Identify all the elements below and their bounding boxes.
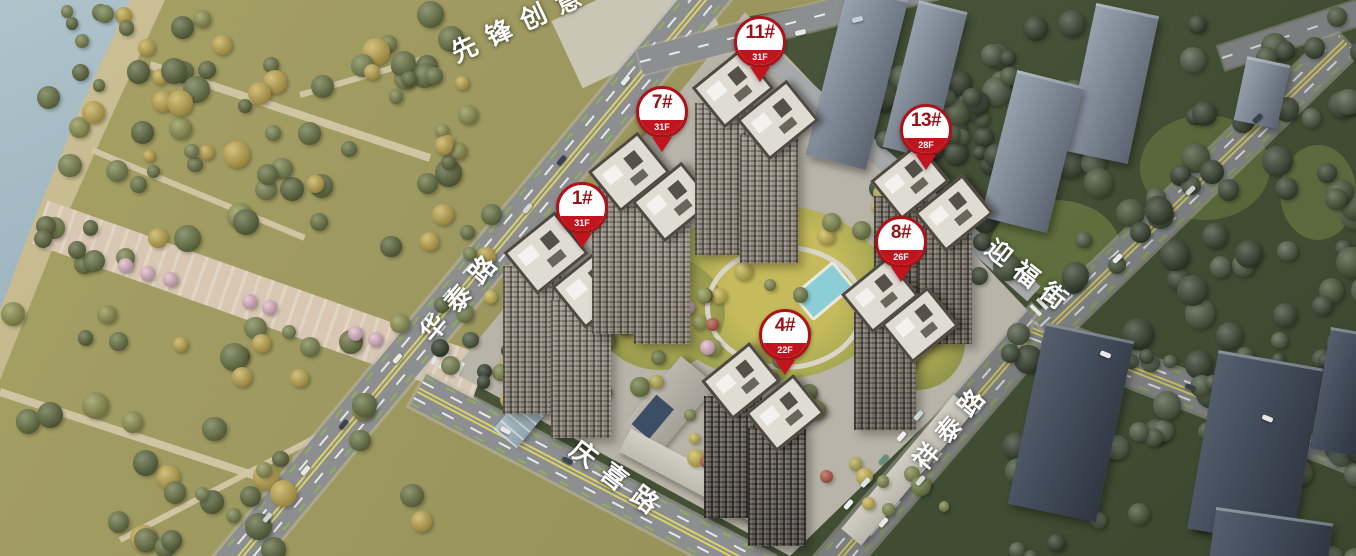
tree <box>417 173 438 194</box>
tree <box>233 209 259 235</box>
tree <box>68 241 87 260</box>
pin-floor-count: 31F <box>639 120 685 135</box>
tree <box>425 67 443 85</box>
tree <box>173 337 188 352</box>
tree <box>127 60 151 84</box>
tree <box>630 377 650 397</box>
pin-number-label: 7# <box>639 92 685 114</box>
building-pin-8[interactable]: 8#26F <box>875 216 927 282</box>
tree <box>458 105 478 125</box>
tree <box>1277 241 1298 262</box>
red-maple-tree <box>706 318 719 331</box>
pin-number-label: 13# <box>903 110 949 132</box>
tree <box>167 90 193 116</box>
pin-floor-count: 28F <box>903 138 949 153</box>
tree <box>1128 503 1150 525</box>
tree <box>310 213 328 231</box>
tree <box>143 150 155 162</box>
tree <box>307 175 324 192</box>
pin-tail <box>775 360 795 375</box>
tree <box>37 86 60 109</box>
tree <box>692 315 707 330</box>
tree <box>300 337 320 357</box>
tree <box>380 236 402 258</box>
tree <box>184 144 199 159</box>
tree <box>764 279 776 291</box>
pin-number-label: 8# <box>878 222 924 244</box>
tree <box>877 475 889 487</box>
tree <box>441 155 456 170</box>
pin-head: 4#22F <box>759 309 811 361</box>
tree <box>441 356 460 375</box>
tree <box>83 250 105 272</box>
tree <box>1163 355 1176 368</box>
tree <box>122 411 144 433</box>
tree <box>401 71 417 87</box>
tree <box>349 430 370 451</box>
tree <box>939 501 949 511</box>
tree <box>199 145 214 160</box>
pin-head: 13#28F <box>900 104 952 156</box>
pin-number-label: 11# <box>737 22 783 44</box>
blossom-tree <box>163 272 178 287</box>
pin-floor-count: 22F <box>762 343 808 358</box>
blossom-tree <box>368 332 383 347</box>
tree <box>1145 197 1173 225</box>
building-pin-11[interactable]: 11#31F <box>734 16 786 82</box>
tree <box>193 10 211 28</box>
tree <box>164 481 186 503</box>
tree <box>138 39 154 55</box>
tree <box>1325 188 1347 210</box>
tree <box>432 204 454 226</box>
tree <box>265 125 281 141</box>
tree <box>261 537 286 556</box>
tree <box>130 176 147 193</box>
tree <box>272 451 288 467</box>
tree <box>58 154 82 178</box>
tree <box>1 302 25 326</box>
tree <box>109 332 128 351</box>
tree <box>311 75 334 98</box>
tree <box>256 462 272 478</box>
tree <box>460 225 475 240</box>
tree <box>161 58 187 84</box>
building-pin-7[interactable]: 7#31F <box>636 86 688 152</box>
pin-tail <box>572 233 592 248</box>
tree <box>962 88 981 107</box>
tree <box>1130 222 1151 243</box>
tree <box>78 330 93 345</box>
tree <box>1262 146 1292 176</box>
building-pin-4[interactable]: 4#22F <box>759 309 811 375</box>
tree <box>106 160 129 183</box>
pin-tail <box>916 155 936 170</box>
tree <box>1058 10 1086 38</box>
tree <box>174 225 201 252</box>
tree <box>364 64 380 80</box>
tree <box>1302 108 1321 127</box>
tree <box>341 141 357 157</box>
tree <box>1218 179 1239 200</box>
tree <box>477 375 491 389</box>
tree <box>1001 344 1020 363</box>
tree <box>1172 165 1190 183</box>
blossom-tree <box>348 326 363 341</box>
tree <box>1075 232 1091 248</box>
pin-head: 1#31F <box>556 182 608 234</box>
tree <box>389 89 404 104</box>
aerial-masterplan: 先锋创意华泰路迎福街祥泰路庆喜路 1#31F4#22F7#31F8#26F11#… <box>0 0 1356 556</box>
tree <box>187 157 203 173</box>
pin-tail <box>750 67 770 82</box>
tree <box>1160 240 1191 271</box>
tree <box>1210 256 1232 278</box>
blossom-tree <box>262 300 277 315</box>
tree <box>202 417 227 442</box>
pin-head: 8#26F <box>875 216 927 268</box>
tree <box>400 484 423 507</box>
blossom-tree <box>140 266 155 281</box>
tree <box>862 497 875 510</box>
tree <box>131 121 154 144</box>
tree <box>232 367 252 387</box>
pin-floor-count: 31F <box>737 50 783 65</box>
pin-number-label: 4# <box>762 315 808 337</box>
tree <box>1312 296 1332 316</box>
blossom-tree <box>242 294 257 309</box>
tree <box>169 117 192 140</box>
tree <box>1139 349 1154 364</box>
pin-tail <box>891 267 911 282</box>
tree <box>248 82 271 105</box>
blossom-tree <box>118 258 133 273</box>
red-maple-tree <box>820 470 833 483</box>
tree <box>481 204 502 225</box>
tree <box>734 262 753 281</box>
tree <box>1192 101 1217 126</box>
tree <box>161 530 181 550</box>
tree <box>1216 322 1243 349</box>
tree <box>411 511 432 532</box>
tree <box>226 508 241 523</box>
tree <box>417 1 444 28</box>
tree <box>223 141 251 169</box>
pin-tail <box>652 137 672 152</box>
tree <box>1200 160 1224 184</box>
tree <box>66 17 78 29</box>
tree <box>1009 542 1025 556</box>
blossom-tree <box>700 340 715 355</box>
tree <box>435 136 454 155</box>
tree <box>93 79 106 92</box>
tree <box>280 177 304 201</box>
tree <box>822 213 840 231</box>
tree <box>212 35 232 55</box>
pin-head: 11#31F <box>734 16 786 68</box>
tree <box>82 392 110 420</box>
pin-floor-count: 31F <box>559 216 605 231</box>
tree <box>97 305 117 325</box>
tree <box>1317 163 1337 183</box>
tree <box>252 334 271 353</box>
building-pin-1[interactable]: 1#31F <box>556 182 608 248</box>
tree <box>1023 16 1048 41</box>
tree <box>61 5 73 17</box>
tree <box>290 369 309 388</box>
tree <box>1047 534 1065 552</box>
pin-number-label: 1# <box>559 188 605 210</box>
tree <box>282 325 296 339</box>
building-pin-13[interactable]: 13#28F <box>900 104 952 170</box>
tree <box>1153 391 1181 419</box>
tree <box>171 16 194 39</box>
tree <box>1177 275 1208 306</box>
tree <box>240 486 261 507</box>
pin-floor-count: 26F <box>878 250 924 265</box>
tree <box>83 220 99 236</box>
tree <box>689 433 700 444</box>
tree <box>1275 177 1298 200</box>
tree <box>1084 168 1113 197</box>
tree <box>298 122 321 145</box>
tree <box>108 511 130 533</box>
tree <box>455 76 469 90</box>
tree <box>1007 323 1030 346</box>
tree <box>462 332 479 349</box>
pin-head: 7#31F <box>636 86 688 138</box>
tree <box>420 232 440 252</box>
tree <box>1129 422 1149 442</box>
tree <box>133 450 158 475</box>
tree <box>1273 303 1298 328</box>
tree <box>37 402 63 428</box>
tree <box>195 487 209 501</box>
tree <box>257 164 278 185</box>
tree <box>147 165 160 178</box>
